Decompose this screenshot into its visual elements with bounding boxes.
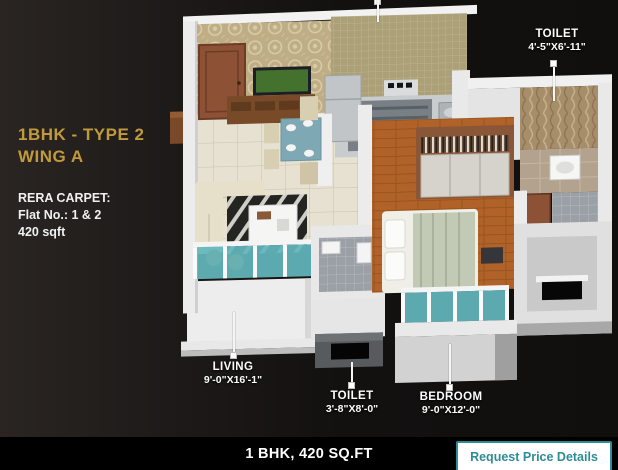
- leader-marker: [230, 352, 237, 359]
- dining-chair: [264, 149, 279, 169]
- floor-plan-page: 1BHK - TYPE 2 WING A RERA CARPET: Flat N…: [0, 0, 618, 470]
- unit-type-line2: WING A: [18, 146, 144, 168]
- leader-marker: [446, 384, 453, 391]
- blanket: [413, 212, 475, 292]
- leader-marker: [348, 382, 355, 389]
- right-outer-wall: [598, 82, 612, 228]
- unit-summary: 1 BHK, 420 SQ.FT: [245, 446, 372, 462]
- room-label-living: LIVING 9'-0"X16'-1": [158, 361, 308, 386]
- leader-line: [449, 344, 451, 386]
- dining-chair: [264, 123, 279, 143]
- leader-line: [233, 312, 235, 354]
- toilet2-basin: [322, 241, 340, 253]
- doorway-opening: [542, 281, 582, 300]
- coffee-table: [249, 205, 297, 242]
- bedside-item: [481, 247, 503, 264]
- leader-line: [351, 362, 353, 384]
- leader-line: [553, 67, 555, 101]
- leader-line: [377, 0, 379, 22]
- dining-chair: [300, 162, 318, 184]
- rera-flat-numbers: Flat No.: 1 & 2: [18, 207, 144, 224]
- wardrobe-doors: [421, 153, 509, 197]
- tv-screen: [256, 69, 308, 92]
- dining-table: [281, 118, 321, 161]
- info-panel: 1BHK - TYPE 2 WING A RERA CARPET: Flat N…: [18, 124, 144, 241]
- room-label-bedroom: BEDROOM 9'-0"X12'-0": [376, 391, 526, 416]
- footer-bar: 1 BHK, 420 SQ.FT Request Price Details: [0, 437, 618, 470]
- pillow: [385, 252, 405, 281]
- leader-marker: [550, 60, 557, 67]
- pillow: [385, 220, 405, 249]
- duct-opening: [331, 343, 369, 360]
- dining-chair: [300, 96, 318, 120]
- request-price-button[interactable]: Request Price Details: [456, 441, 612, 470]
- rera-heading: RERA CARPET:: [18, 190, 144, 207]
- rera-carpet-area: 420 sqft: [18, 224, 144, 241]
- toilet-marble-wall: [520, 86, 600, 150]
- unit-type-line1: 1BHK - TYPE 2: [18, 124, 144, 146]
- toilet2-wc: [357, 243, 371, 263]
- bedroom-wall: [358, 105, 372, 231]
- room-label-toilet-top: TOILET 4'-5"X6'-11": [482, 28, 618, 53]
- rera-details: RERA CARPET: Flat No.: 1 & 2 420 sqft: [18, 190, 144, 241]
- wardrobe-hangers: [421, 135, 509, 153]
- unit-type-title: 1BHK - TYPE 2 WING A: [18, 124, 144, 168]
